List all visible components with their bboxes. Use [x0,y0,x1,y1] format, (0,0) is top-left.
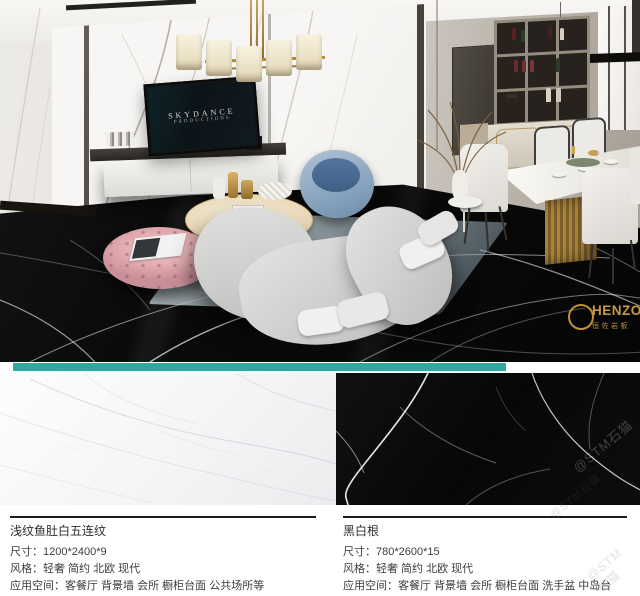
white-swatch-veins-svg [0,373,336,505]
product-size: 尺寸：780*2600*15 [343,544,637,561]
wine-bottle [512,28,516,40]
chandelier-rod [262,0,264,60]
plate [552,172,566,177]
fruit-basket [258,182,292,200]
cabinet-cell [528,89,556,122]
size-label: 尺寸： [343,546,376,558]
style-label: 风格： [10,563,43,575]
style-value: 轻奢 简约 北欧 现代 [376,563,473,575]
armchair-blue [300,150,374,218]
table-centerpiece [566,158,600,167]
lamp-shade [266,40,292,76]
separator-line [10,516,316,518]
logo-subtext: 恒佐岩板 [592,321,630,331]
teal-divider [13,363,506,371]
product-card-black: 黑白根 尺寸：780*2600*15 风格：轻奢 简约 北欧 现代 应用空间：客… [343,522,637,595]
wine-bottle [548,26,552,38]
gold-vase [228,172,238,198]
console-books [106,132,134,147]
vase [452,170,468,202]
tv: SKYDANCE PRODUCTIONS [143,76,260,157]
cabinet-cell [559,53,587,86]
swatch-white-marble [0,373,336,505]
size-value: 1200*2400*9 [43,546,107,558]
wine-glass [560,156,562,165]
style-value: 轻奢 简约 北欧 现代 [43,563,140,575]
armchair-seat [312,158,360,192]
space-label: 应用空间： [10,580,65,592]
corner-column [632,0,640,56]
separator-line [343,516,627,518]
plate [604,159,618,164]
lamp-shade [206,40,232,76]
logo-text: HENZO [592,303,640,318]
dining-chair [630,148,640,204]
showroom-render: SKYDANCE PRODUCTIONS [0,0,640,362]
space-value: 客餐厅 背景墙 会所 橱柜台面 洗手盆 中岛台 [398,580,611,592]
magazine-cover [132,238,161,259]
candle [572,146,575,154]
wine-bottle [522,60,526,72]
wine-glass [598,148,600,157]
gold-vase [241,180,253,199]
lamp-shade [296,34,322,70]
space-label: 应用空间： [343,580,398,592]
size-value: 780*2600*15 [376,546,440,558]
cabinet-cell [559,87,587,120]
window-mullion [624,6,626,130]
branches-svg [410,96,510,176]
product-name: 浅纹鱼肚白五连纹 [10,522,336,539]
champagne-bottle [546,88,551,102]
lamp-shade [176,34,202,70]
product-space: 应用空间：客餐厅 背景墙 会所 橱柜台面 公共场所等 [10,578,336,595]
product-card-white: 浅纹鱼肚白五连纹 尺寸：1200*2400*9 风格：轻奢 简约 北欧 现代 应… [10,522,336,595]
wine-bottle [556,58,560,72]
wine-bottle [560,28,564,40]
wine-bottle [514,60,518,72]
style-label: 风格： [343,563,376,575]
size-label: 尺寸： [10,546,43,558]
white-jar [213,178,225,199]
product-style: 风格：轻奢 简约 北欧 现代 [10,561,336,578]
product-name: 黑白根 [343,522,637,539]
cabinet-cell [497,56,525,89]
lamp-shade [236,46,262,82]
space-value: 客餐厅 背景墙 会所 橱柜台面 公共场所等 [65,580,264,592]
window-mullion [608,6,610,130]
wine-bottle [530,60,534,72]
logo-ring-icon [568,304,594,330]
product-size: 尺寸：1200*2400*9 [10,544,336,561]
side-table-leg [463,206,465,232]
champagne-bottle [556,88,561,102]
wine-bottle [521,30,525,42]
chair-leg [612,248,614,284]
brand-logo: HENZO 恒佐岩板 [568,294,640,346]
product-catalog-card: SKYDANCE PRODUCTIONS [0,0,640,596]
